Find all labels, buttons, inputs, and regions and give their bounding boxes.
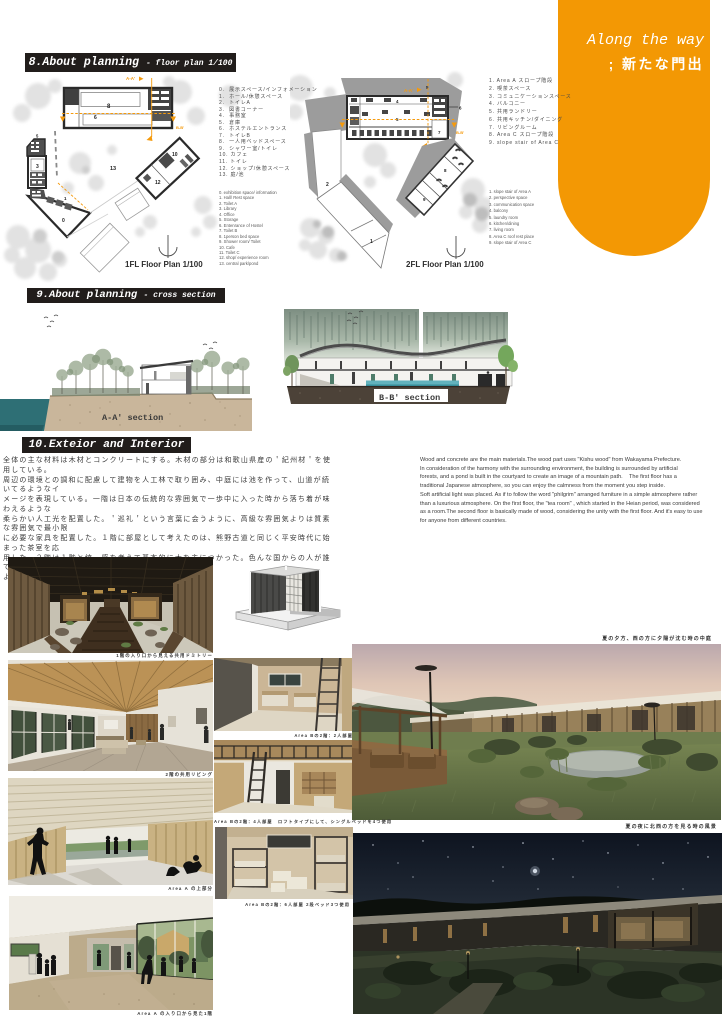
svg-text:12: 12 [155,180,161,186]
svg-text:6: 6 [94,115,97,121]
svg-text:B-B': B-B' [456,130,464,135]
svg-text:1: 1 [370,239,373,245]
svg-text:2: 2 [326,182,329,188]
svg-text:5: 5 [36,134,39,139]
svg-text:1: 1 [64,196,67,201]
svg-text:3: 3 [36,164,39,170]
svg-text:0: 0 [62,218,65,224]
svg-text:A-A' section: A-A' section [102,413,163,423]
svg-text:10: 10 [172,152,178,158]
svg-text:A-A': A-A' [126,76,135,81]
svg-text:6: 6 [459,106,462,111]
svg-text:A-A': A-A' [404,88,413,93]
svg-text:B-B': B-B' [176,125,184,130]
svg-text:13: 13 [110,166,116,172]
svg-text:B-B' section: B-B' section [379,393,440,403]
